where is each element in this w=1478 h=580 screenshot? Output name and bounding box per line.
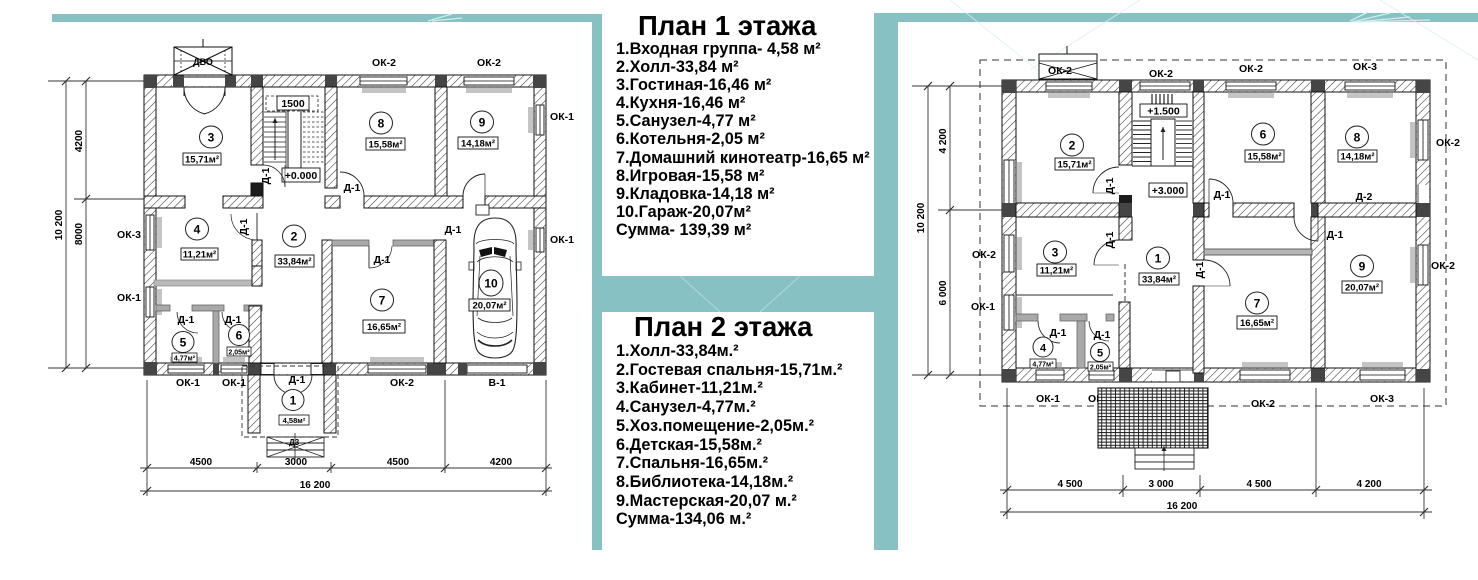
svg-text:4,58м²: 4,58м² xyxy=(283,416,306,425)
svg-text:9: 9 xyxy=(1359,260,1366,274)
svg-text:1: 1 xyxy=(1155,252,1162,266)
svg-text:33,84м²: 33,84м² xyxy=(278,257,312,268)
svg-text:6 000: 6 000 xyxy=(938,280,949,305)
svg-text:ОК-1: ОК-1 xyxy=(971,301,995,313)
svg-text:14,18м²: 14,18м² xyxy=(461,139,495,150)
svg-text:15,71м²: 15,71м² xyxy=(185,155,219,166)
svg-text:1: 1 xyxy=(290,394,297,408)
svg-text:+0.000: +0.000 xyxy=(285,170,318,182)
svg-text:4,77м²: 4,77м² xyxy=(174,356,196,363)
svg-text:ОК-2: ОК-2 xyxy=(972,249,996,261)
svg-text:Д-1: Д-1 xyxy=(1214,189,1231,201)
svg-text:6: 6 xyxy=(1260,128,1267,142)
svg-text:ОК-1: ОК-1 xyxy=(176,377,200,389)
svg-text:8000: 8000 xyxy=(74,222,85,245)
svg-text:ОК-1: ОК-1 xyxy=(1036,393,1060,405)
svg-text:ОК-2: ОК-2 xyxy=(390,377,414,389)
svg-text:8: 8 xyxy=(378,117,385,131)
svg-text:5: 5 xyxy=(1097,348,1103,360)
svg-text:7: 7 xyxy=(1254,297,1261,311)
svg-text:+1.500: +1.500 xyxy=(1147,106,1180,118)
svg-text:Д-1: Д-1 xyxy=(1050,327,1067,339)
svg-text:Д-1: Д-1 xyxy=(1194,261,1206,278)
svg-text:Д-1: Д-1 xyxy=(260,167,272,184)
svg-text:11,21м²: 11,21м² xyxy=(183,250,216,261)
svg-text:Д-1: Д-1 xyxy=(374,254,391,266)
svg-text:10 200: 10 200 xyxy=(54,209,65,240)
svg-text:ОК-2: ОК-2 xyxy=(1239,63,1263,75)
svg-text:В-1: В-1 xyxy=(489,377,506,389)
svg-text:4 200: 4 200 xyxy=(938,128,949,153)
svg-text:ОК-1: ОК-1 xyxy=(117,292,141,304)
svg-text:4200: 4200 xyxy=(74,129,85,152)
svg-text:Д-1: Д-1 xyxy=(1327,229,1344,241)
svg-text:Д-1: Д-1 xyxy=(1104,231,1116,248)
svg-text:ОК-1: ОК-1 xyxy=(550,234,574,246)
svg-text:16 200: 16 200 xyxy=(300,480,331,491)
svg-text:15,58м²: 15,58м² xyxy=(369,140,403,151)
svg-text:20,07м²: 20,07м² xyxy=(473,301,507,312)
svg-text:15,58м²: 15,58м² xyxy=(1248,152,1282,163)
svg-text:8: 8 xyxy=(1354,131,1361,145)
svg-text:4 500: 4 500 xyxy=(1246,479,1271,490)
svg-text:10: 10 xyxy=(484,277,498,291)
svg-text:ОК-2: ОК-2 xyxy=(1436,137,1460,149)
svg-text:1500: 1500 xyxy=(281,98,305,110)
svg-text:Д-1: Д-1 xyxy=(289,374,306,386)
svg-text:4: 4 xyxy=(194,223,201,237)
svg-text:3 000: 3 000 xyxy=(1148,479,1173,490)
svg-text:16,65м²: 16,65м² xyxy=(1240,318,1274,329)
svg-text:Д-1: Д-1 xyxy=(1104,177,1116,194)
svg-text:2,05м²: 2,05м² xyxy=(1090,365,1112,372)
svg-text:15,71м²: 15,71м² xyxy=(1058,160,1092,171)
svg-text:33,84м²: 33,84м² xyxy=(1142,275,1176,286)
svg-text:Д-1: Д-1 xyxy=(1094,329,1111,341)
svg-text:7: 7 xyxy=(379,294,386,308)
svg-text:10 200: 10 200 xyxy=(916,202,927,233)
svg-text:4200: 4200 xyxy=(490,457,513,468)
svg-text:14,18м²: 14,18м² xyxy=(1341,152,1375,163)
svg-text:Д-2: Д-2 xyxy=(1356,191,1373,203)
svg-text:ОК-1: ОК-1 xyxy=(222,377,246,389)
svg-text:+3.000: +3.000 xyxy=(1152,185,1185,197)
svg-text:ОК-2: ОК-2 xyxy=(477,57,501,69)
svg-text:Д-1: Д-1 xyxy=(445,224,462,236)
svg-text:ОК-2: ОК-2 xyxy=(1431,260,1455,272)
svg-text:ОК-1: ОК-1 xyxy=(550,111,574,123)
svg-text:ОК-3: ОК-3 xyxy=(1353,61,1377,73)
svg-text:4500: 4500 xyxy=(190,457,213,468)
svg-text:4 500: 4 500 xyxy=(1057,479,1082,490)
svg-text:16,65м²: 16,65м² xyxy=(367,322,401,333)
svg-text:ДВО: ДВО xyxy=(193,57,213,67)
svg-text:3: 3 xyxy=(208,131,215,145)
svg-text:9: 9 xyxy=(479,116,486,130)
svg-text:11,21м²: 11,21м² xyxy=(1040,266,1073,277)
svg-text:4 200: 4 200 xyxy=(1356,479,1381,490)
svg-text:2: 2 xyxy=(1069,139,1076,153)
svg-text:3000: 3000 xyxy=(285,457,308,468)
svg-text:ОК-3: ОК-3 xyxy=(1370,393,1394,405)
svg-text:4: 4 xyxy=(1040,343,1047,355)
svg-text:3: 3 xyxy=(1052,246,1059,260)
svg-text:20,07м²: 20,07м² xyxy=(1345,283,1379,294)
svg-text:5: 5 xyxy=(180,336,187,350)
svg-text:2: 2 xyxy=(291,230,298,244)
svg-text:ОК-2: ОК-2 xyxy=(372,57,396,69)
svg-text:2,05м²: 2,05м² xyxy=(228,350,250,357)
svg-text:16 200: 16 200 xyxy=(1167,501,1198,512)
svg-text:4,77м²: 4,77м² xyxy=(1032,362,1054,369)
svg-text:Д-1: Д-1 xyxy=(238,218,250,235)
svg-text:6: 6 xyxy=(236,329,243,343)
svg-text:Д-1: Д-1 xyxy=(178,314,195,326)
svg-text:4500: 4500 xyxy=(387,457,410,468)
svg-text:ОК-3: ОК-3 xyxy=(117,229,141,241)
svg-text:ОК-2: ОК-2 xyxy=(1048,65,1072,77)
svg-text:Д3: Д3 xyxy=(289,438,300,447)
svg-text:ОК-2: ОК-2 xyxy=(1149,68,1173,80)
svg-text:Д-1: Д-1 xyxy=(344,182,361,194)
svg-text:Д-1: Д-1 xyxy=(225,314,242,326)
svg-text:ОК-2: ОК-2 xyxy=(1251,398,1275,410)
